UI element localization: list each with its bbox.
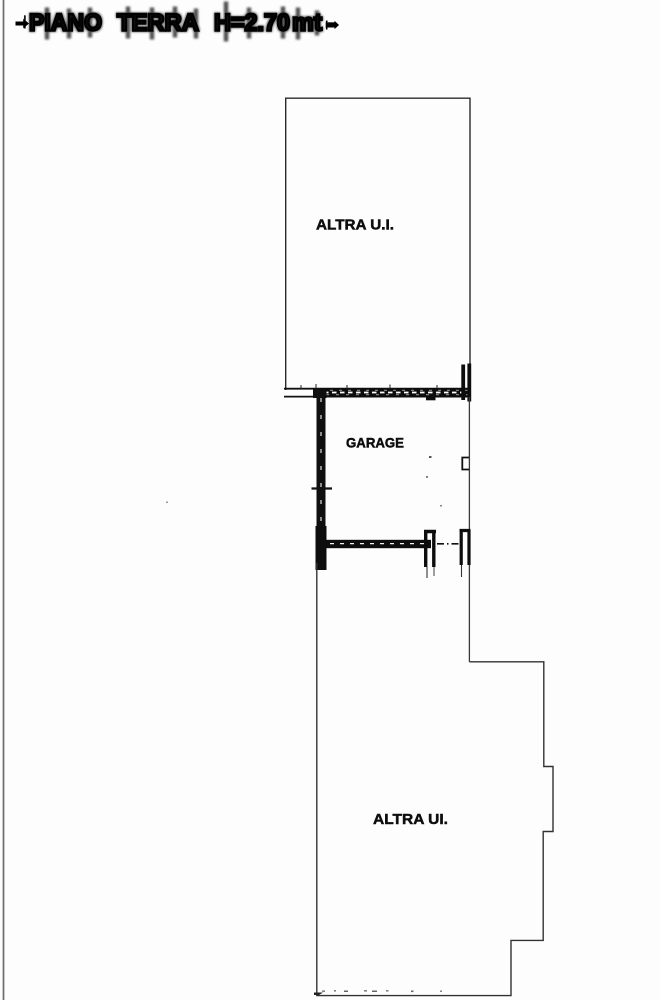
svg-text:PIANO: PIANO: [29, 10, 102, 37]
svg-text:H=2.70: H=2.70: [214, 10, 290, 37]
svg-text:GARAGE: GARAGE: [346, 435, 404, 451]
svg-text:ALTRA U.I.: ALTRA U.I.: [316, 217, 394, 234]
svg-text:TERRA: TERRA: [117, 10, 199, 37]
svg-text:mt: mt: [292, 10, 322, 37]
svg-text:ALTRA UI.: ALTRA UI.: [373, 811, 448, 828]
